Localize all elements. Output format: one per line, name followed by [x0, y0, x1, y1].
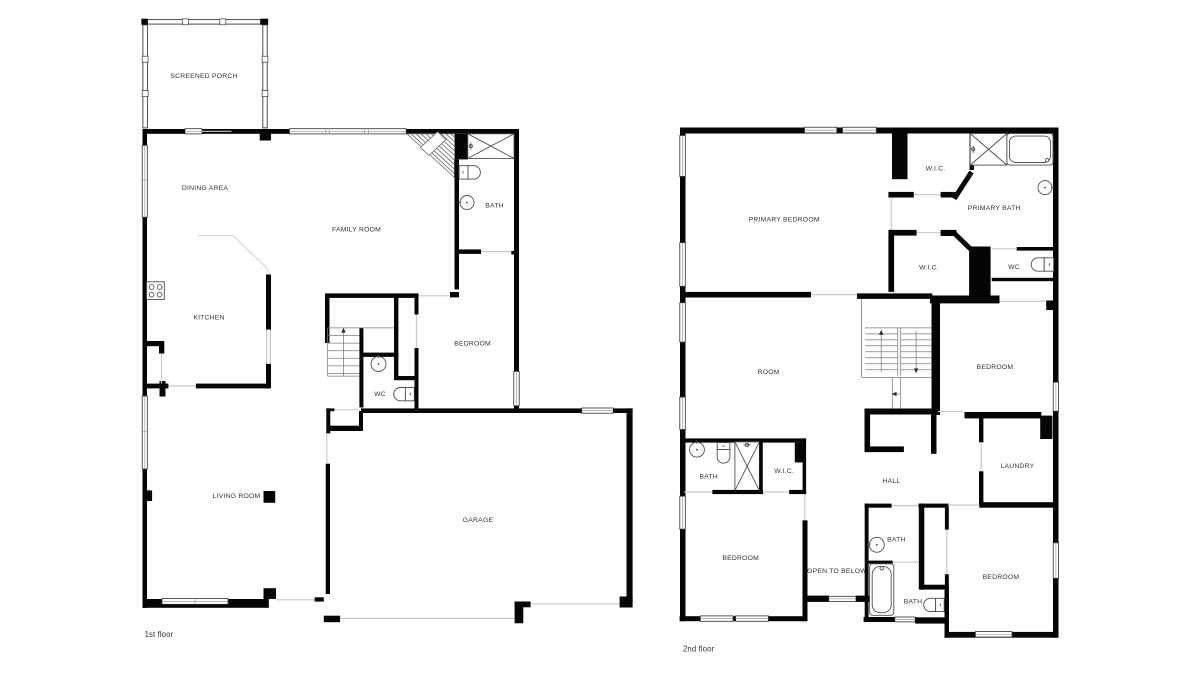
svg-text:BEDROOM: BEDROOM	[977, 364, 1014, 371]
svg-text:PRIMARY BATH: PRIMARY BATH	[968, 205, 1021, 212]
svg-text:ROOM: ROOM	[758, 369, 780, 376]
svg-text:BATH: BATH	[485, 203, 504, 210]
svg-text:DINING AREA: DINING AREA	[182, 185, 228, 192]
svg-text:LIVING ROOM: LIVING ROOM	[213, 493, 261, 500]
svg-text:BATH: BATH	[887, 536, 906, 543]
svg-text:W.I.C.: W.I.C.	[926, 166, 946, 173]
svg-text:LAUNDRY: LAUNDRY	[1000, 463, 1034, 470]
svg-text:WC: WC	[374, 391, 386, 398]
svg-text:KITCHEN: KITCHEN	[193, 315, 224, 322]
svg-text:W.I.C.: W.I.C.	[774, 468, 794, 475]
svg-text:SCREENED PORCH: SCREENED PORCH	[170, 73, 237, 80]
svg-text:GARAGE: GARAGE	[463, 517, 494, 524]
svg-text:BATH: BATH	[904, 599, 923, 606]
svg-text:BEDROOM: BEDROOM	[722, 555, 759, 562]
svg-text:HALL: HALL	[883, 478, 901, 485]
svg-text:1st floor: 1st floor	[145, 630, 174, 639]
svg-text:BEDROOM: BEDROOM	[983, 574, 1020, 581]
svg-text:W.I.C.: W.I.C.	[919, 265, 939, 272]
svg-text:FAMILY ROOM: FAMILY ROOM	[332, 227, 381, 234]
svg-text:BATH: BATH	[699, 474, 718, 481]
svg-text:PRIMARY BEDROOM: PRIMARY BEDROOM	[749, 217, 820, 224]
svg-text:WC: WC	[1008, 264, 1020, 271]
svg-text:OPEN TO BELOW: OPEN TO BELOW	[807, 568, 867, 575]
svg-text:2nd floor: 2nd floor	[683, 645, 715, 654]
svg-text:BEDROOM: BEDROOM	[454, 341, 491, 348]
